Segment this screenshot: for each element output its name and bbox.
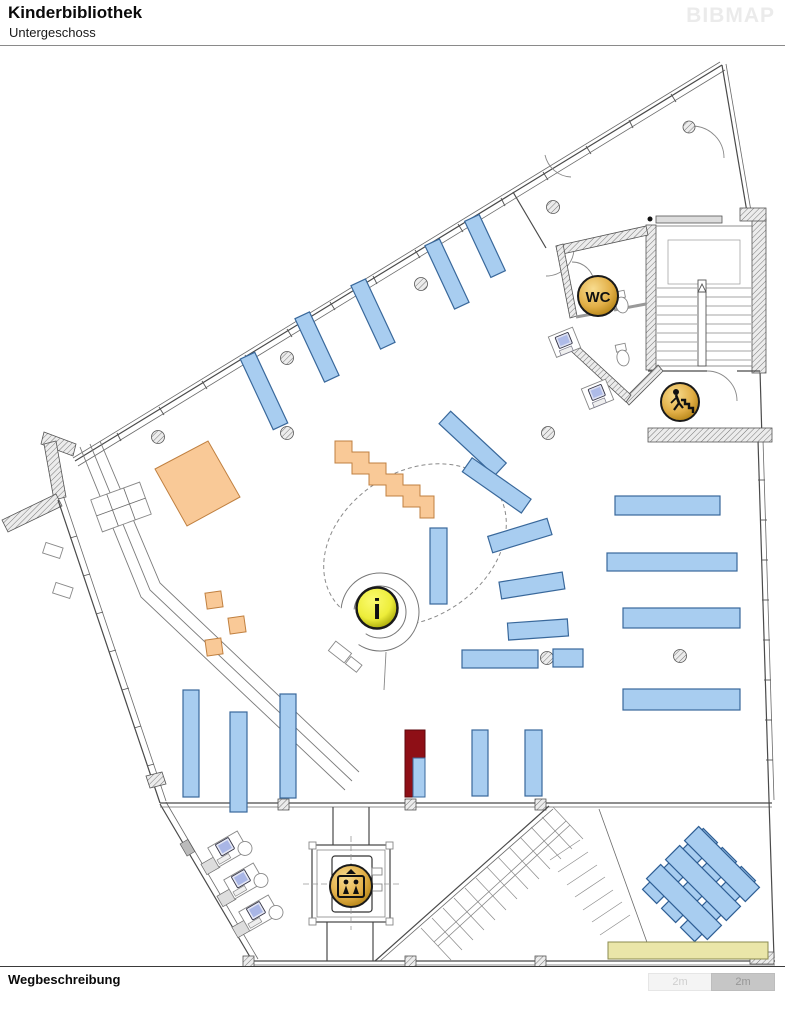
bookshelves [183,215,759,942]
scale-bar: 2m 2m [648,973,775,991]
highlighted-shelf [405,730,425,797]
bibmap-logo: BIBMAP [686,4,775,28]
route-description-label[interactable]: Wegbeschreibung [8,972,120,987]
podium-square [155,441,240,526]
floor-plan-svg: WC i [0,0,785,1011]
wc-icon[interactable]: WC [578,276,618,316]
toilet-icon [614,343,630,367]
wc-room [548,226,648,409]
stairs-icon[interactable] [661,383,699,421]
table-grid [91,482,151,532]
scale-segment-2: 2m [711,973,775,991]
scale-segment-1: 2m [648,973,711,991]
stairs-southeast [375,806,653,961]
lattice-shelves [643,827,760,942]
stairwell-northeast [646,208,766,373]
svg-text:i: i [373,594,381,626]
floor-label: Untergeschoss [9,25,96,40]
elevator-icon[interactable] [330,865,372,907]
header: Kinderbibliothek Untergeschoss BIBMAP [0,0,785,46]
page-title: Kinderbibliothek [8,3,142,23]
info-icon[interactable]: i [357,588,398,629]
bench [608,942,768,959]
footer: Wegbeschreibung 2m 2m [0,966,785,1011]
svg-text:WC: WC [586,289,611,306]
podium-stairs [335,441,434,518]
bibmap-page: WC i Kinderbibliothek Untergescho [0,0,785,1011]
